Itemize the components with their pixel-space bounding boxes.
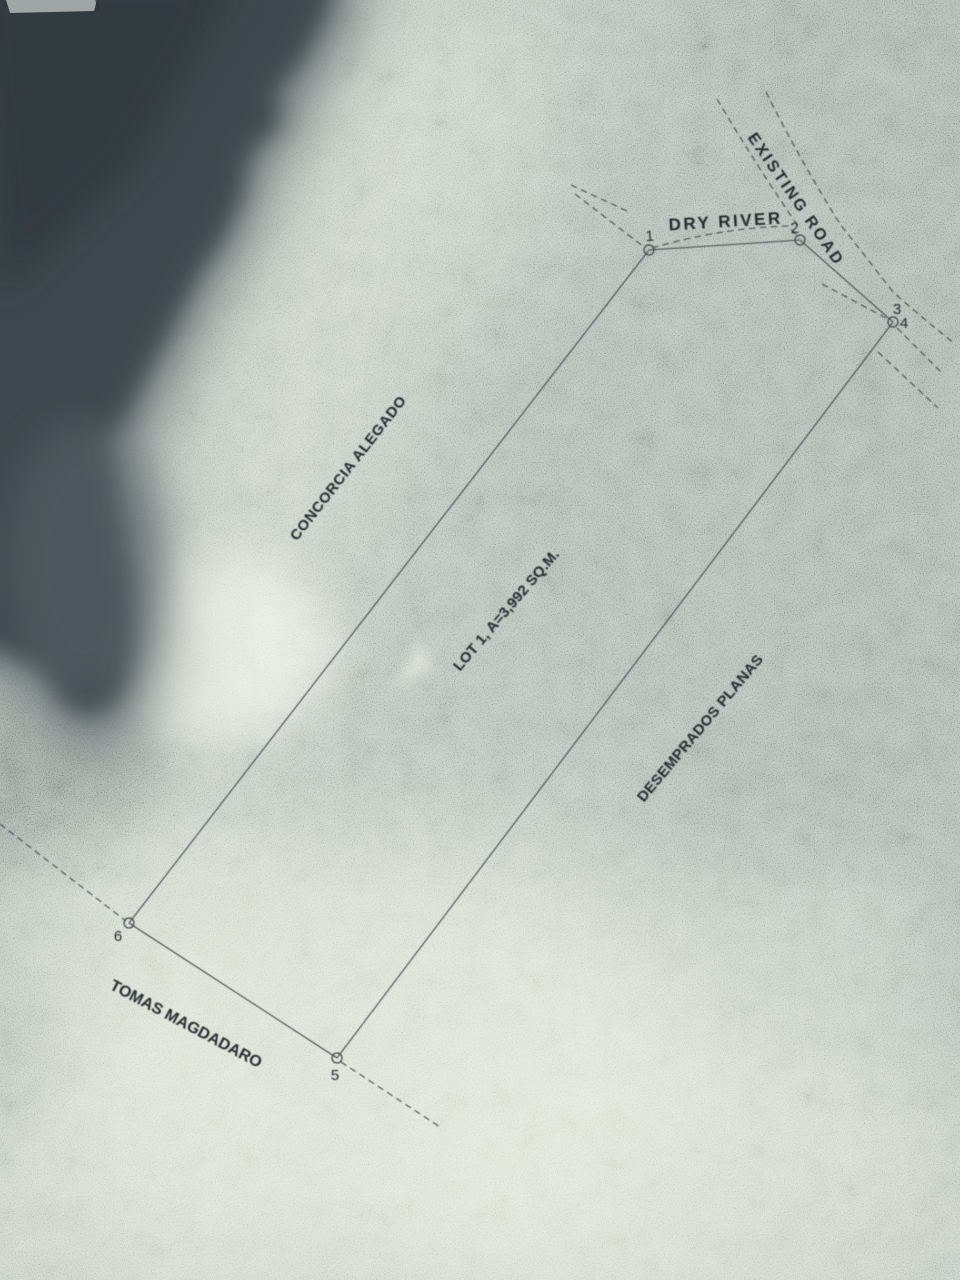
svg-text:4: 4 bbox=[900, 315, 908, 332]
svg-text:1: 1 bbox=[645, 228, 655, 246]
svg-text:5: 5 bbox=[331, 1067, 339, 1084]
svg-text:2: 2 bbox=[790, 220, 800, 238]
svg-text:6: 6 bbox=[114, 928, 122, 945]
